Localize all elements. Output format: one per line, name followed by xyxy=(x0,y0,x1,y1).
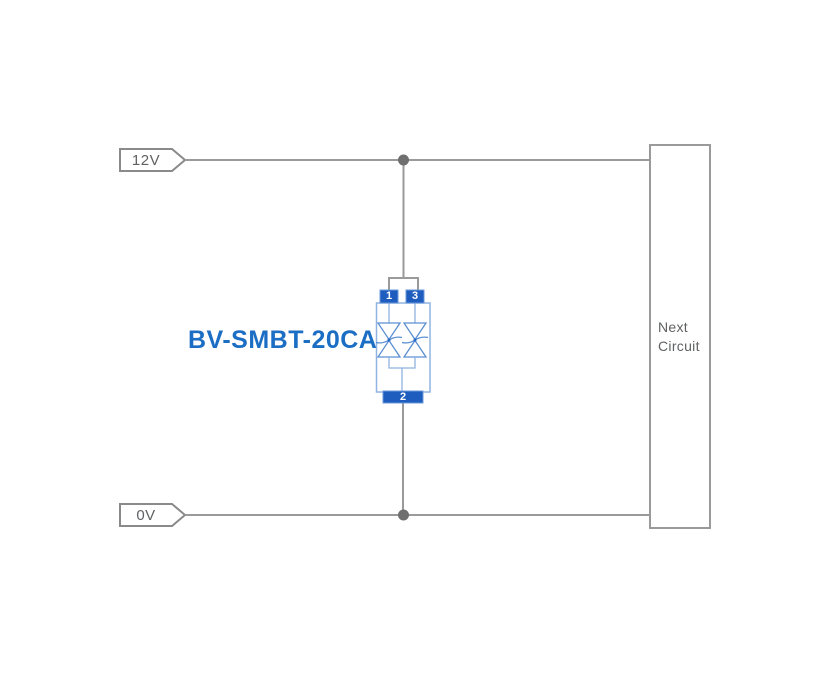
pin3-number: 3 xyxy=(406,290,424,303)
net-tag-0v: 0V xyxy=(120,504,172,526)
pin1-number: 1 xyxy=(380,290,398,303)
component-part-number: BV-SMBT-20CA xyxy=(188,326,377,355)
junction-dot-top xyxy=(398,155,409,166)
next-circuit-label: Next Circuit xyxy=(650,145,710,528)
next-circuit-label-line1: Next xyxy=(658,318,688,337)
net-tag-12v-label: 12V xyxy=(132,152,160,169)
net-tag-12v: 12V xyxy=(120,149,172,171)
next-circuit-label-line2: Circuit xyxy=(658,337,700,356)
pin3-number-label: 3 xyxy=(412,291,418,302)
net-tag-0v-label: 0V xyxy=(136,507,155,524)
pin2-number-label: 2 xyxy=(400,392,406,403)
schematic-canvas: 12V 0V BV-SMBT-20CA 1 3 2 Next Circuit xyxy=(0,0,832,675)
pin2-number: 2 xyxy=(383,391,423,403)
pin1-number-label: 1 xyxy=(386,291,392,302)
junction-dot-bottom xyxy=(398,510,409,521)
